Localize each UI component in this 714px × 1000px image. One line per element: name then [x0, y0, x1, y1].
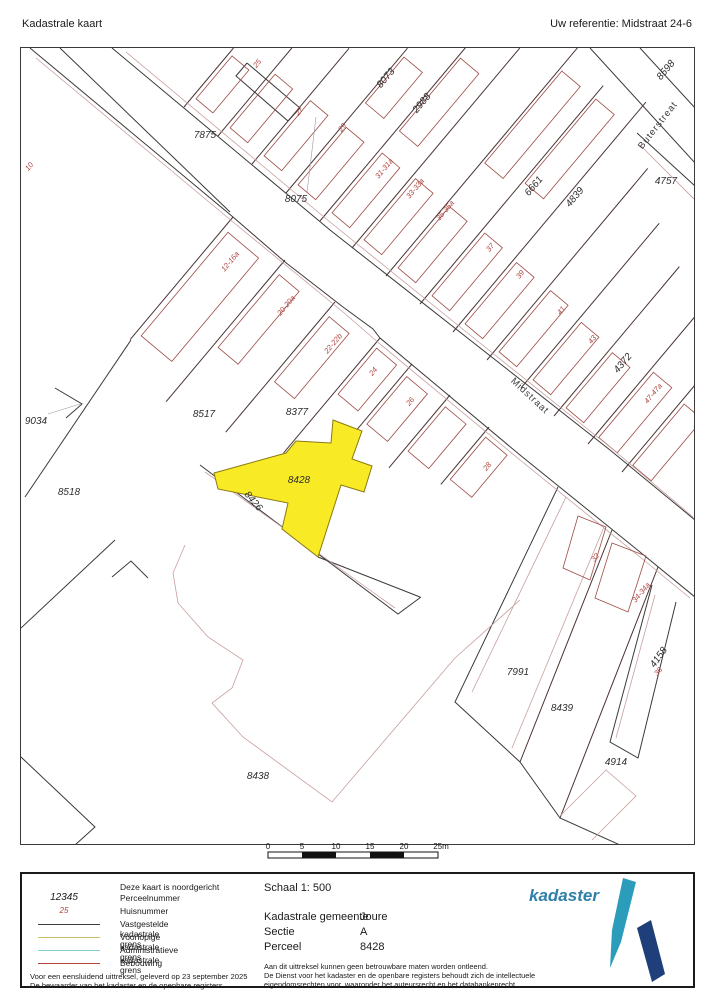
vastgestelde-grens-swatch	[38, 924, 100, 925]
page-title: Kadastrale kaart	[22, 18, 102, 30]
street-label-buterstreat: Buterstreat	[636, 99, 680, 151]
map-canvas: 7875 8075 8073 2988 6661 4839 8598 4757 …	[21, 48, 694, 844]
bebouwing-swatch	[38, 963, 100, 964]
ne-strips-layer	[184, 48, 694, 490]
kadaster-logo-text: kadaster	[529, 886, 599, 906]
kadastrale-kaart-page: Kadastrale kaart Uw referentie: Midstraa…	[0, 0, 714, 1000]
street-label-midstraat: Midstraat	[508, 376, 551, 417]
house-number-labels: 10 25 27 29 31-31a 33-33a 35-35a 37 39 4…	[23, 57, 665, 678]
parcel-label: 8377	[286, 407, 309, 418]
legend-label: Huisnummer	[120, 906, 168, 916]
parcel-label: 8075	[285, 194, 308, 205]
parcel-label: 8598	[655, 58, 678, 82]
house-number-sample: 25	[36, 906, 92, 915]
highlighted-parcel-8428	[214, 420, 372, 557]
leader-lines	[48, 117, 316, 414]
street-labels: Midstraat Buterstreat	[508, 99, 680, 416]
parcel-label: 8428	[288, 475, 311, 486]
house-number: 47-47a	[642, 382, 664, 406]
perceel-value: 8428	[360, 941, 384, 953]
north-note: Deze kaart is noordgericht	[120, 882, 219, 892]
delivery-note-line1: Voor een eensluidend uittreksel, gelever…	[30, 972, 247, 981]
scale-tick: 20	[400, 842, 409, 851]
house-number: 25	[250, 57, 263, 71]
parcel-label: 4158	[648, 645, 670, 670]
scale-tick: 15	[366, 842, 375, 851]
sectie-value: A	[360, 926, 367, 938]
info-box: Deze kaart is noordgericht 12345 Perceel…	[20, 872, 695, 988]
parcel-label: 4757	[655, 176, 678, 187]
house-number: 12-16a	[219, 250, 241, 274]
house-number: 34-34a	[630, 581, 652, 605]
disclaimer-line1: Aan dit uittreksel kunnen geen betrouwba…	[264, 962, 488, 971]
scale-tick: 10	[332, 842, 341, 851]
administratieve-grens-swatch	[38, 950, 100, 951]
scale-tick: 5	[300, 842, 305, 851]
scale-bar-canvas: 0 5 10 15 20 25m	[250, 840, 470, 862]
disclaimer-line2: De Dienst voor het kadaster en de openba…	[264, 971, 535, 980]
house-number: 43	[586, 333, 599, 346]
house-number: 10	[23, 160, 36, 173]
house-number: 26	[403, 395, 416, 409]
kadaster-logo-mark	[601, 878, 673, 986]
scale-text: Schaal 1: 500	[264, 882, 331, 894]
cadastral-map: 7875 8075 8073 2988 6661 4839 8598 4757 …	[20, 47, 695, 845]
parcel-label: 8517	[193, 409, 216, 420]
perceel-label: Perceel	[264, 941, 301, 953]
parcel-label: 9034	[25, 416, 48, 427]
gemeente-label: Kadastrale gemeente	[264, 911, 369, 923]
parcel-label: 8439	[551, 703, 574, 714]
house-number: 41	[555, 304, 567, 316]
house-number: 20-20a	[274, 294, 297, 318]
sectie-label: Sectie	[264, 926, 295, 938]
scale-bar: 0 5 10 15 20 25m	[250, 840, 470, 867]
house-number: 37	[484, 241, 497, 254]
reference-text: Uw referentie: Midstraat 24-6	[550, 18, 692, 30]
house-number: 28	[480, 460, 493, 474]
house-number: 27	[292, 105, 305, 119]
kadaster-logo: kadaster	[511, 876, 687, 986]
parcel-label: 8438	[247, 771, 270, 782]
scale-tick: 0	[266, 842, 271, 851]
scale-tick: 25m	[433, 842, 449, 851]
house-number: 35-35a	[434, 199, 456, 223]
delivery-note-line2: De bewaarder van het kadaster en de open…	[30, 981, 223, 990]
parcel-label: 7875	[194, 130, 217, 141]
legend-label: Perceelnummer	[120, 893, 180, 903]
parcel-label: 7991	[507, 667, 529, 678]
parcel-label: 4914	[605, 757, 628, 768]
boundary-lines-layer	[21, 48, 694, 844]
parcel-label: 8073	[375, 66, 398, 90]
disclaimer-line3: eigendomsrechten voor, waaronder het aut…	[264, 980, 517, 989]
parcel-label: 8518	[58, 487, 81, 498]
gemeente-value: Joure	[360, 911, 388, 923]
voorlopige-grens-swatch	[38, 937, 100, 938]
parcel-label: 4839	[564, 185, 587, 209]
parcel-number-sample: 12345	[36, 892, 92, 903]
buildings-layer	[36, 52, 694, 840]
house-number: 24	[366, 365, 379, 378]
parcel-labels: 7875 8075 8073 2988 6661 4839 8598 4757 …	[25, 58, 678, 782]
legend-label: Bebouwing	[120, 958, 162, 968]
